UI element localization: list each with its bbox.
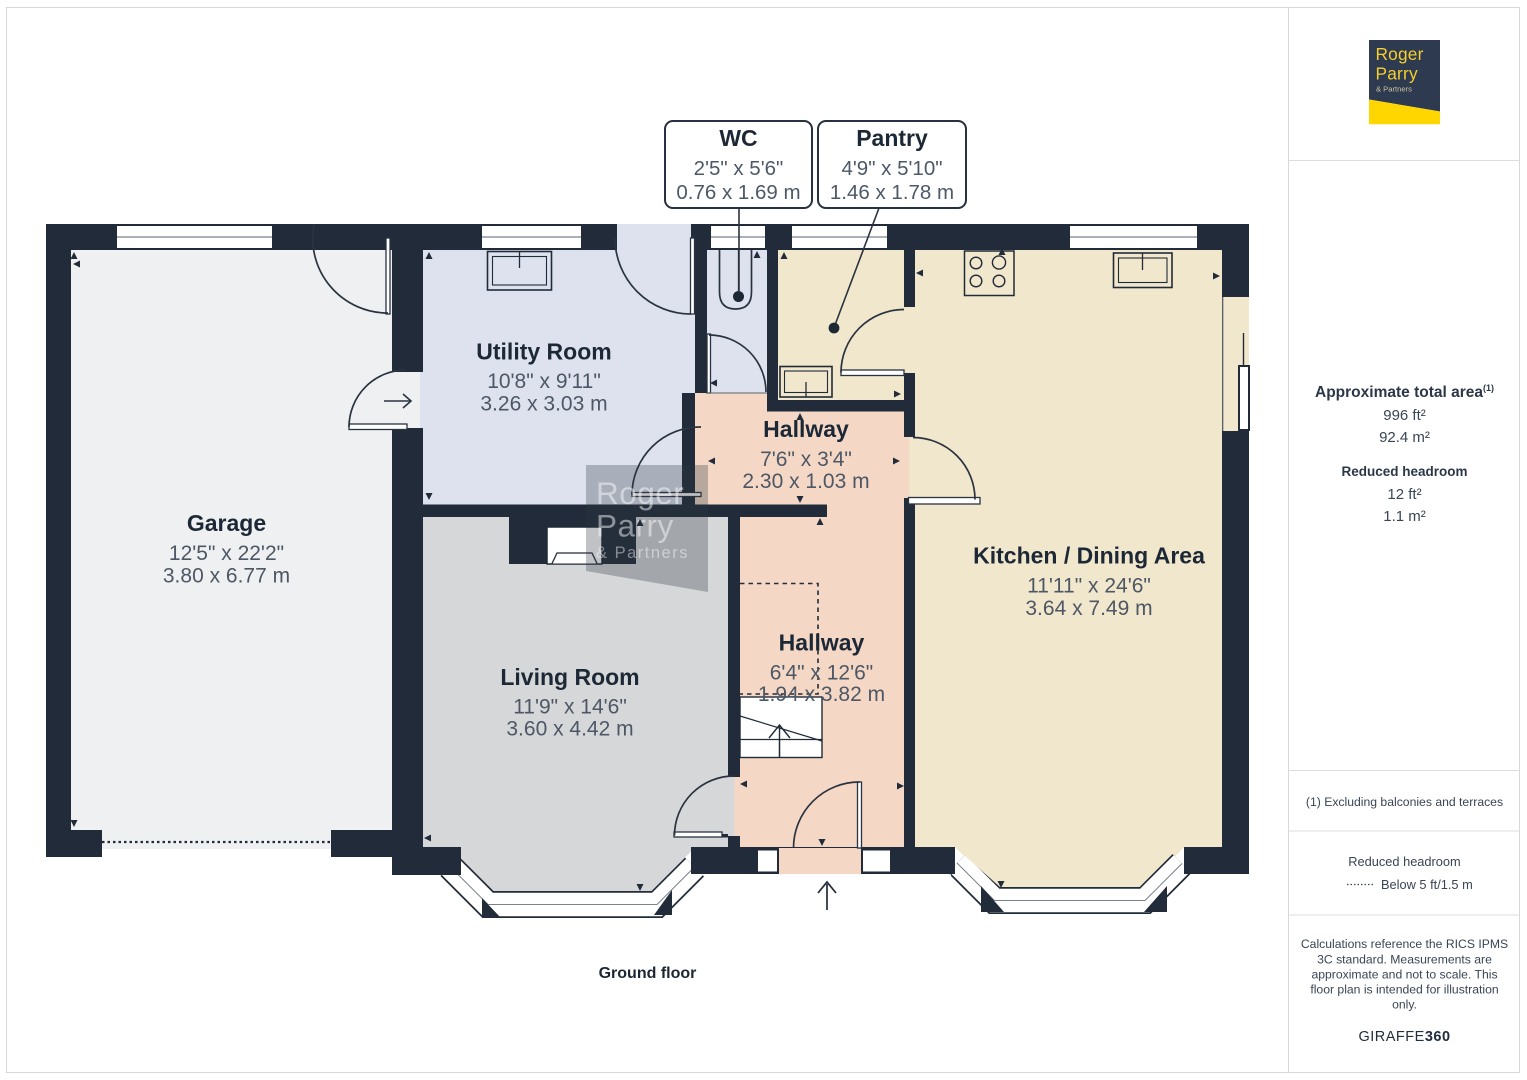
svg-text:10'8" x 9'11": 10'8" x 9'11" <box>487 370 601 393</box>
svg-text:1.1 m²: 1.1 m² <box>1383 508 1426 525</box>
svg-text:1.46 x 1.78 m: 1.46 x 1.78 m <box>830 181 954 204</box>
svg-text:Roger: Roger <box>596 475 684 511</box>
svg-text:2.30 x 1.03 m: 2.30 x 1.03 m <box>742 470 869 493</box>
svg-text:0.76 x 1.69 m: 0.76 x 1.69 m <box>676 181 800 204</box>
svg-text:Hallway: Hallway <box>779 630 865 656</box>
svg-text:3.64 x 7.49 m: 3.64 x 7.49 m <box>1025 597 1152 620</box>
svg-text:Below 5 ft/1.5 m: Below 5 ft/1.5 m <box>1381 877 1473 892</box>
svg-text:Garage: Garage <box>187 510 266 536</box>
svg-text:Reduced headroom: Reduced headroom <box>1341 464 1467 479</box>
svg-text:1.94 x 3.82 m: 1.94 x 3.82 m <box>758 683 885 706</box>
svg-text:12 ft²: 12 ft² <box>1387 486 1421 503</box>
svg-text:WC: WC <box>719 125 757 151</box>
svg-text:& Partners: & Partners <box>1376 85 1412 94</box>
svg-text:2'5" x 5'6": 2'5" x 5'6" <box>694 157 784 180</box>
svg-text:Calculations reference the RIC: Calculations reference the RICS IPMS <box>1301 937 1508 951</box>
svg-text:& Partners: & Partners <box>596 544 689 562</box>
svg-text:Utility Room: Utility Room <box>476 339 611 365</box>
svg-text:6'4" x 12'6": 6'4" x 12'6" <box>770 662 874 685</box>
svg-text:3.80 x 6.77 m: 3.80 x 6.77 m <box>163 565 290 588</box>
svg-text:Reduced headroom: Reduced headroom <box>1348 854 1460 869</box>
svg-text:11'9" x 14'6": 11'9" x 14'6" <box>513 696 627 719</box>
svg-text:Pantry: Pantry <box>856 125 928 151</box>
svg-text:7'6" x 3'4": 7'6" x 3'4" <box>760 448 852 471</box>
svg-text:(1) Excluding balconies and te: (1) Excluding balconies and terraces <box>1306 795 1503 809</box>
svg-text:Approximate total area(1): Approximate total area(1) <box>1315 383 1494 401</box>
svg-text:11'11" x 24'6": 11'11" x 24'6" <box>1027 575 1151 598</box>
svg-text:Living Room: Living Room <box>500 664 639 690</box>
svg-text:12'5" x 22'2": 12'5" x 22'2" <box>169 542 284 565</box>
svg-text:Ground floor: Ground floor <box>599 965 697 982</box>
svg-text:Kitchen / Dining Area: Kitchen / Dining Area <box>973 543 1205 569</box>
svg-text:996 ft²: 996 ft² <box>1383 407 1426 424</box>
svg-text:3.26 x 3.03 m: 3.26 x 3.03 m <box>480 393 607 416</box>
svg-text:GIRAFFE360: GIRAFFE360 <box>1358 1029 1450 1045</box>
svg-text:floor plan is intended for ill: floor plan is intended for illustration <box>1310 983 1498 997</box>
svg-text:92.4 m²: 92.4 m² <box>1379 429 1430 446</box>
svg-text:3C standard. Measurements are: 3C standard. Measurements are <box>1317 953 1492 967</box>
svg-text:Hallway: Hallway <box>763 416 849 442</box>
svg-text:approximate and not to scale.: approximate and not to scale. This <box>1311 968 1497 982</box>
svg-text:Parry: Parry <box>1376 64 1418 84</box>
svg-text:Parry: Parry <box>596 508 674 544</box>
svg-text:Roger: Roger <box>1376 44 1424 64</box>
svg-text:4'9" x 5'10": 4'9" x 5'10" <box>841 157 942 180</box>
svg-text:only.: only. <box>1392 998 1417 1012</box>
svg-text:3.60 x 4.42 m: 3.60 x 4.42 m <box>506 718 633 741</box>
